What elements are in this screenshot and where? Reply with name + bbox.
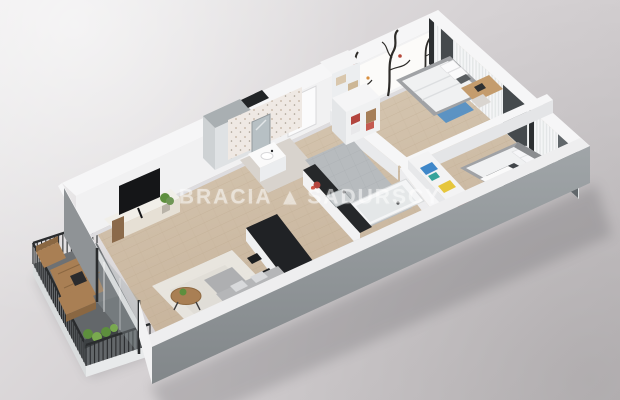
- floorplan-render: BRACIA ▲ SADURSCY: [0, 0, 620, 400]
- sink-faucet: [343, 191, 346, 194]
- wallpaper-bird: [398, 54, 402, 58]
- apartment-3d-floorplan: [0, 0, 620, 400]
- planter-plant: [101, 327, 111, 337]
- plant-foliage: [166, 197, 174, 205]
- bath1-basin: [261, 153, 273, 160]
- wallpaper-bird: [366, 76, 369, 79]
- window-frame: [429, 18, 434, 68]
- planter-plant: [83, 329, 93, 339]
- bath1-tap: [271, 150, 273, 152]
- red-pot: [311, 186, 315, 190]
- table-plant: [180, 289, 187, 296]
- bathtub-faucet: [396, 201, 399, 204]
